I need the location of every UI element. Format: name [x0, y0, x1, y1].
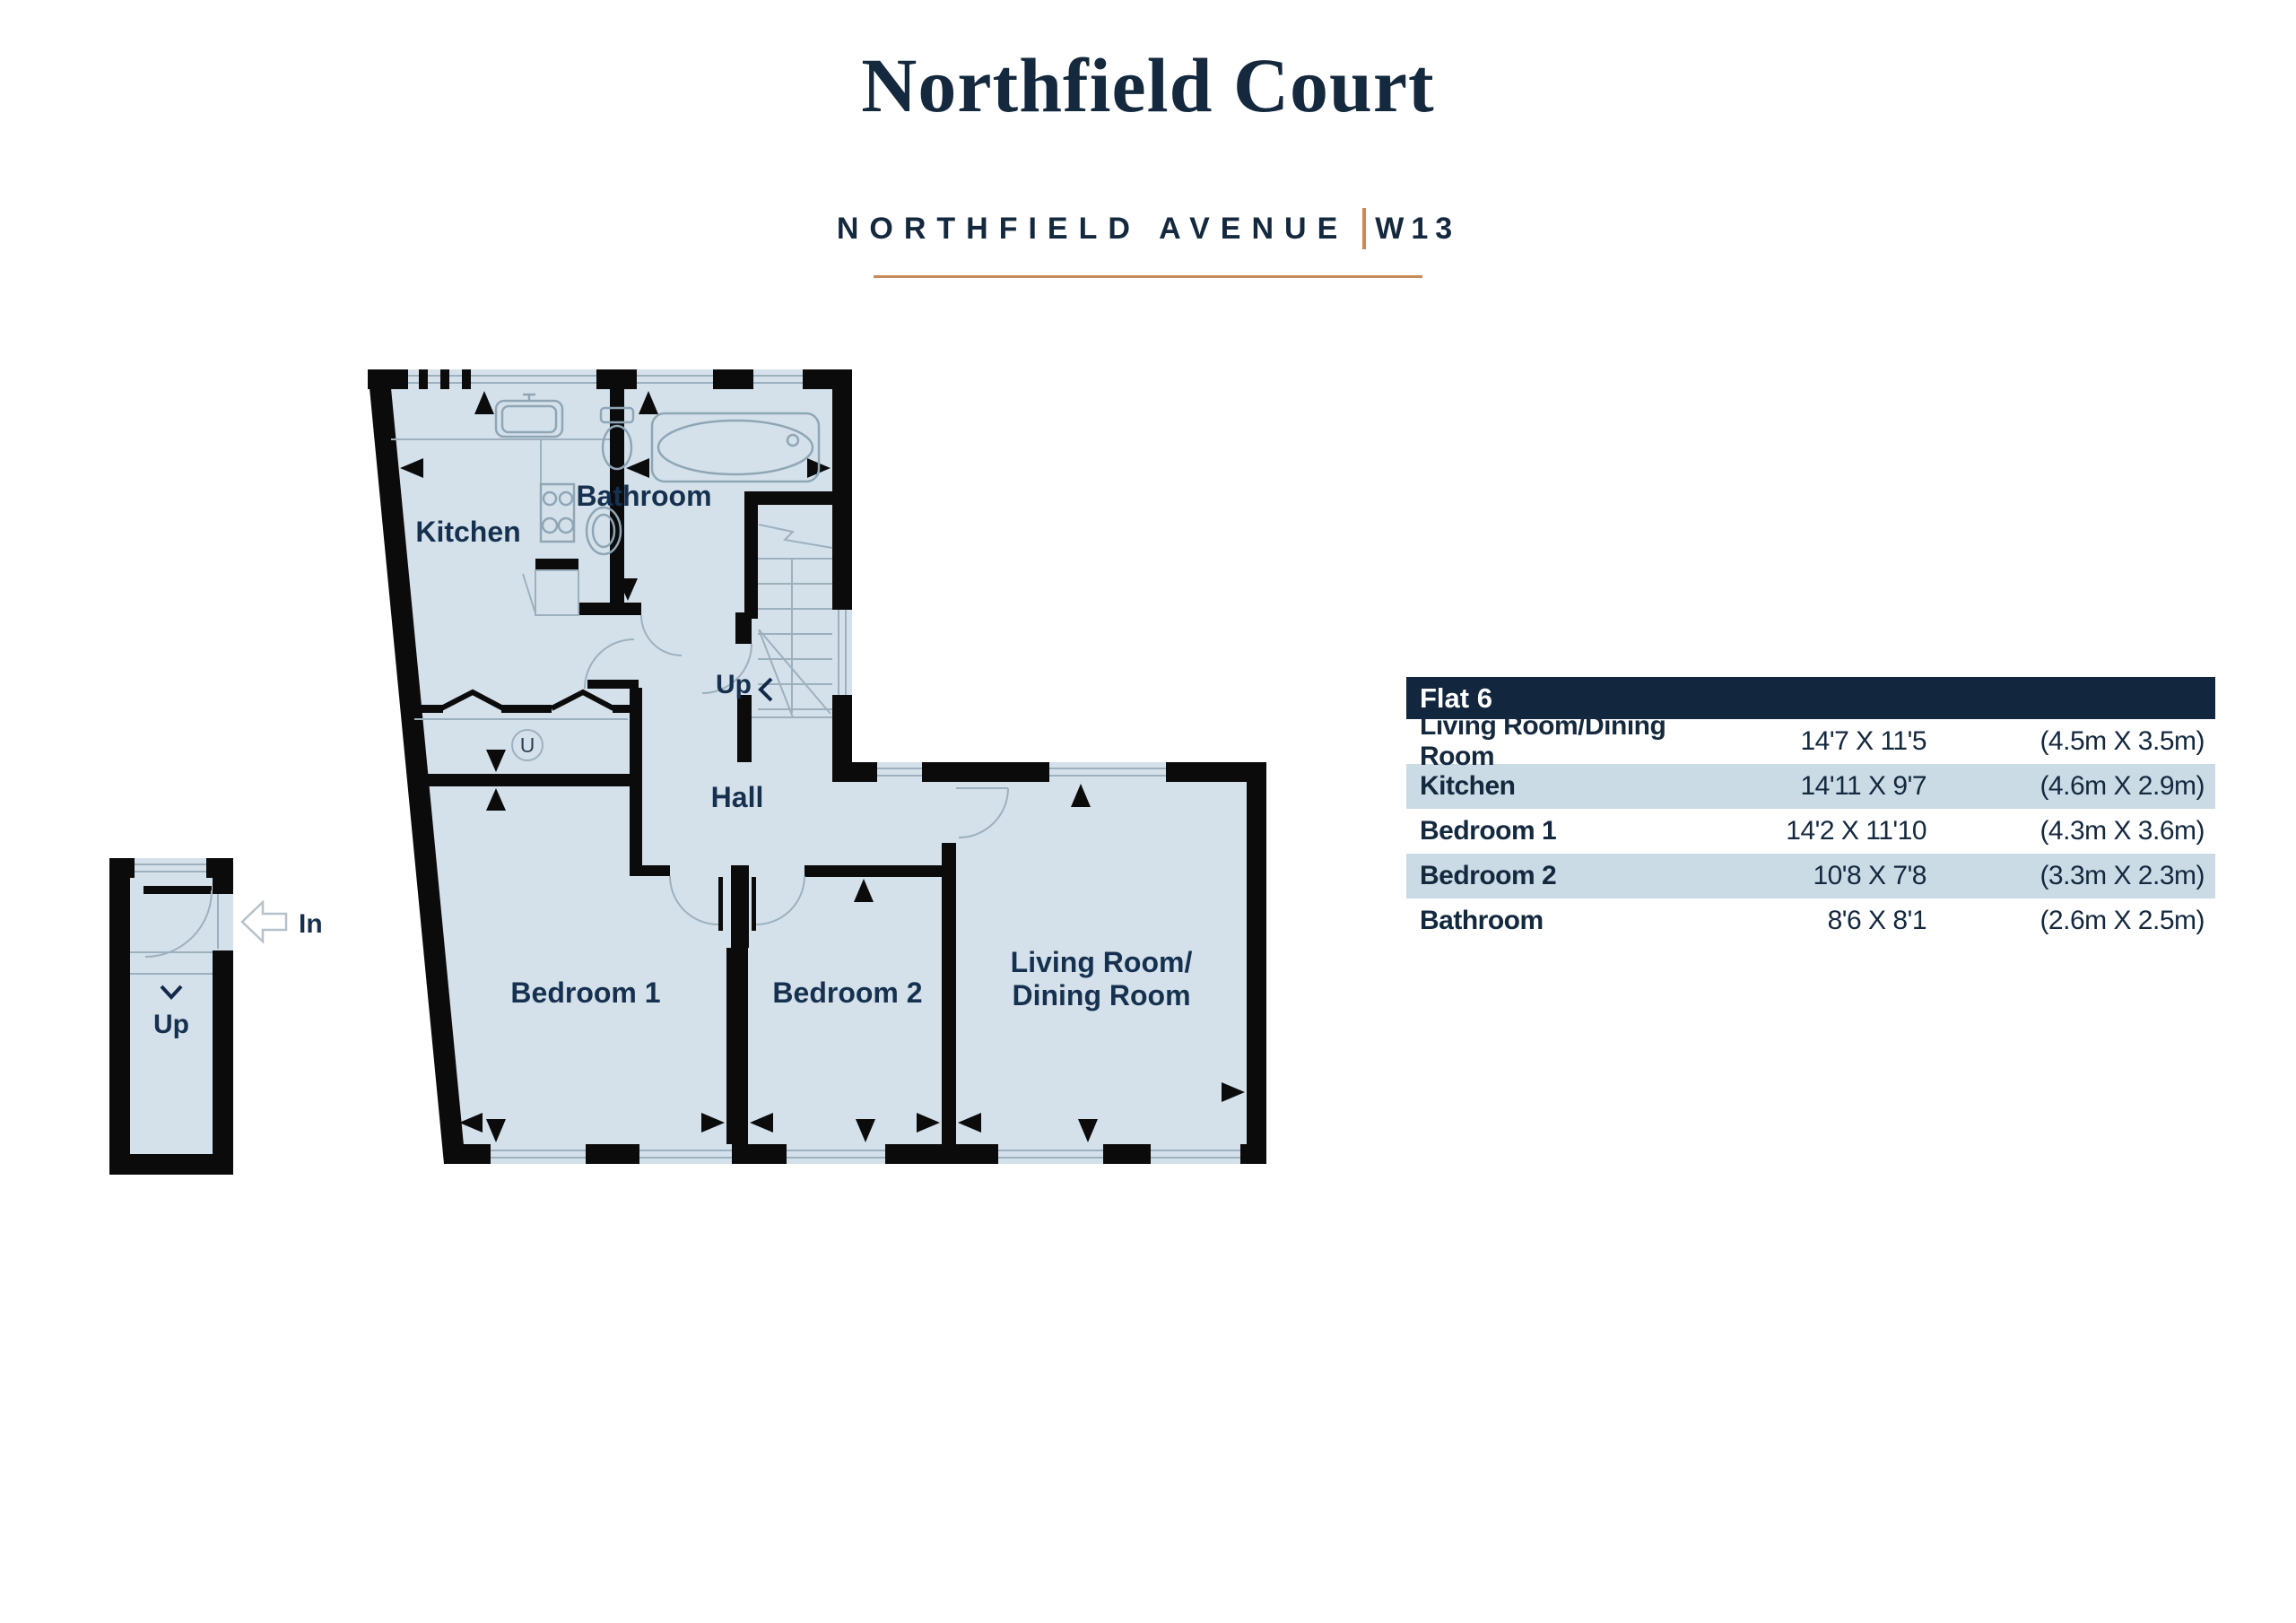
kitchen-lower-wall-a: [416, 705, 443, 713]
stairs-left-stub: [735, 612, 752, 644]
bedroom2-label: Bedroom 2: [772, 976, 922, 1009]
window-icon: [787, 1144, 885, 1164]
room-name: Living Room/Dining Room: [1420, 711, 1707, 772]
bedroom2-living-wall: [942, 843, 956, 1144]
table-row: Living Room/Dining Room 14'7 X 11'5 (4.5…: [1406, 719, 2215, 764]
room-size-metric: (2.6m X 2.5m): [1926, 906, 2215, 936]
room-name: Bedroom 1: [1420, 816, 1707, 846]
table-row: Bedroom 1 14'2 X 11'10 (4.3m X 3.6m): [1406, 809, 2215, 854]
postcode: W13: [1375, 212, 1459, 247]
lobby-right-wall-bottom: [213, 950, 233, 1154]
window-icon: [637, 369, 713, 389]
window-icon: [639, 1144, 732, 1164]
window-icon: [753, 369, 803, 389]
table-row: Bathroom 8'6 X 8'1 (2.6m X 2.5m): [1406, 898, 2215, 943]
lobby-left-wall: [109, 858, 130, 1175]
room-size-imperial: 8'6 X 8'1: [1707, 906, 1926, 936]
lobby-up-label: Up: [153, 1010, 189, 1039]
room-size-imperial: 14'2 X 11'10: [1707, 816, 1926, 846]
closet-top-wall: [535, 559, 578, 570]
table-row: Bedroom 2 10'8 X 7'8 (3.3m X 2.3m): [1406, 854, 2215, 898]
room-size-imperial: 10'8 X 7'8: [1707, 861, 1926, 891]
lobby-bottom-wall: [109, 1154, 233, 1175]
window-icon: [1151, 1144, 1240, 1164]
page-subtitle: NORTHFIELD AVENUE W13: [0, 208, 2296, 249]
window-icon: [1049, 762, 1166, 782]
window-icon: [998, 1144, 1103, 1164]
room-size-metric: (3.3m X 2.3m): [1926, 861, 2215, 891]
bedroom-divider-stub: [731, 865, 749, 948]
flat-title: Flat 6: [1420, 682, 1492, 715]
window-icon: [491, 1144, 586, 1164]
window-icon: [832, 610, 852, 695]
room-size-metric: (4.3m X 3.6m): [1926, 816, 2215, 846]
stairs-up-label: Up: [716, 670, 752, 699]
accent-underline: [874, 275, 1422, 278]
entrance-arrow-icon: [242, 902, 286, 942]
kitchen-lower-wall-b: [501, 705, 552, 713]
room-name: Bathroom: [1420, 906, 1707, 936]
entrance-door-leaf: [143, 886, 212, 894]
kitchen-door-head: [587, 680, 639, 689]
dimensions-table: Flat 6 Living Room/Dining Room 14'7 X 11…: [1406, 677, 2215, 943]
living-room-label-line2: Dining Room: [1012, 979, 1190, 1011]
window-icon: [408, 369, 596, 389]
room-size-imperial: 14'11 X 9'7: [1707, 771, 1926, 802]
entrance-in-label: In: [299, 909, 323, 939]
hall-label: Hall: [711, 781, 764, 813]
room-size-imperial: 14'7 X 11'5: [1707, 726, 1926, 757]
window-icon: [877, 762, 922, 782]
kitchen-label: Kitchen: [415, 516, 520, 548]
hall-left-stub: [630, 865, 670, 876]
page-title: Northfield Court: [0, 45, 2296, 126]
upper-right-wall: [832, 369, 852, 762]
lobby-right-wall-top: [213, 858, 233, 894]
table-row: Kitchen 14'11 X 9'7 (4.6m X 2.9m): [1406, 764, 2215, 809]
living-room-label-line1: Living Room/: [1011, 946, 1193, 978]
stairs-left-lower: [737, 695, 752, 762]
street-name: NORTHFIELD AVENUE: [837, 212, 1348, 247]
stairs-left-wall: [744, 505, 758, 619]
hall-left-wall: [630, 688, 642, 865]
living-right-wall: [1247, 762, 1266, 1164]
subtitle-divider: [1362, 208, 1366, 249]
window-icon: [135, 858, 206, 878]
bedroom1-label: Bedroom 1: [510, 976, 660, 1009]
bedroom2-top-wall: [804, 865, 942, 877]
room-size-metric: (4.5m X 3.5m): [1926, 726, 2215, 757]
bathroom-stairs-wall: [744, 491, 839, 505]
bedroom-door-jamb-right: [752, 877, 756, 931]
floorplan-page: Northfield Court NORTHFIELD AVENUE W13: [0, 0, 2296, 1623]
floor-plan: Kitchen Bathroom Hall Bedroom 1 Bedroom …: [90, 341, 1309, 1202]
room-size-metric: (4.6m X 2.9m): [1926, 771, 2215, 802]
utility-label: U: [520, 733, 535, 757]
bathroom-label: Bathroom: [576, 480, 711, 512]
bedroom-divider-wall: [726, 948, 748, 1144]
room-name: Bedroom 2: [1420, 861, 1707, 891]
bedroom-door-jamb-left: [718, 877, 723, 931]
bedroom1-top-wall: [410, 774, 642, 786]
room-name: Kitchen: [1420, 771, 1707, 802]
hall-top-wall: [578, 603, 641, 615]
